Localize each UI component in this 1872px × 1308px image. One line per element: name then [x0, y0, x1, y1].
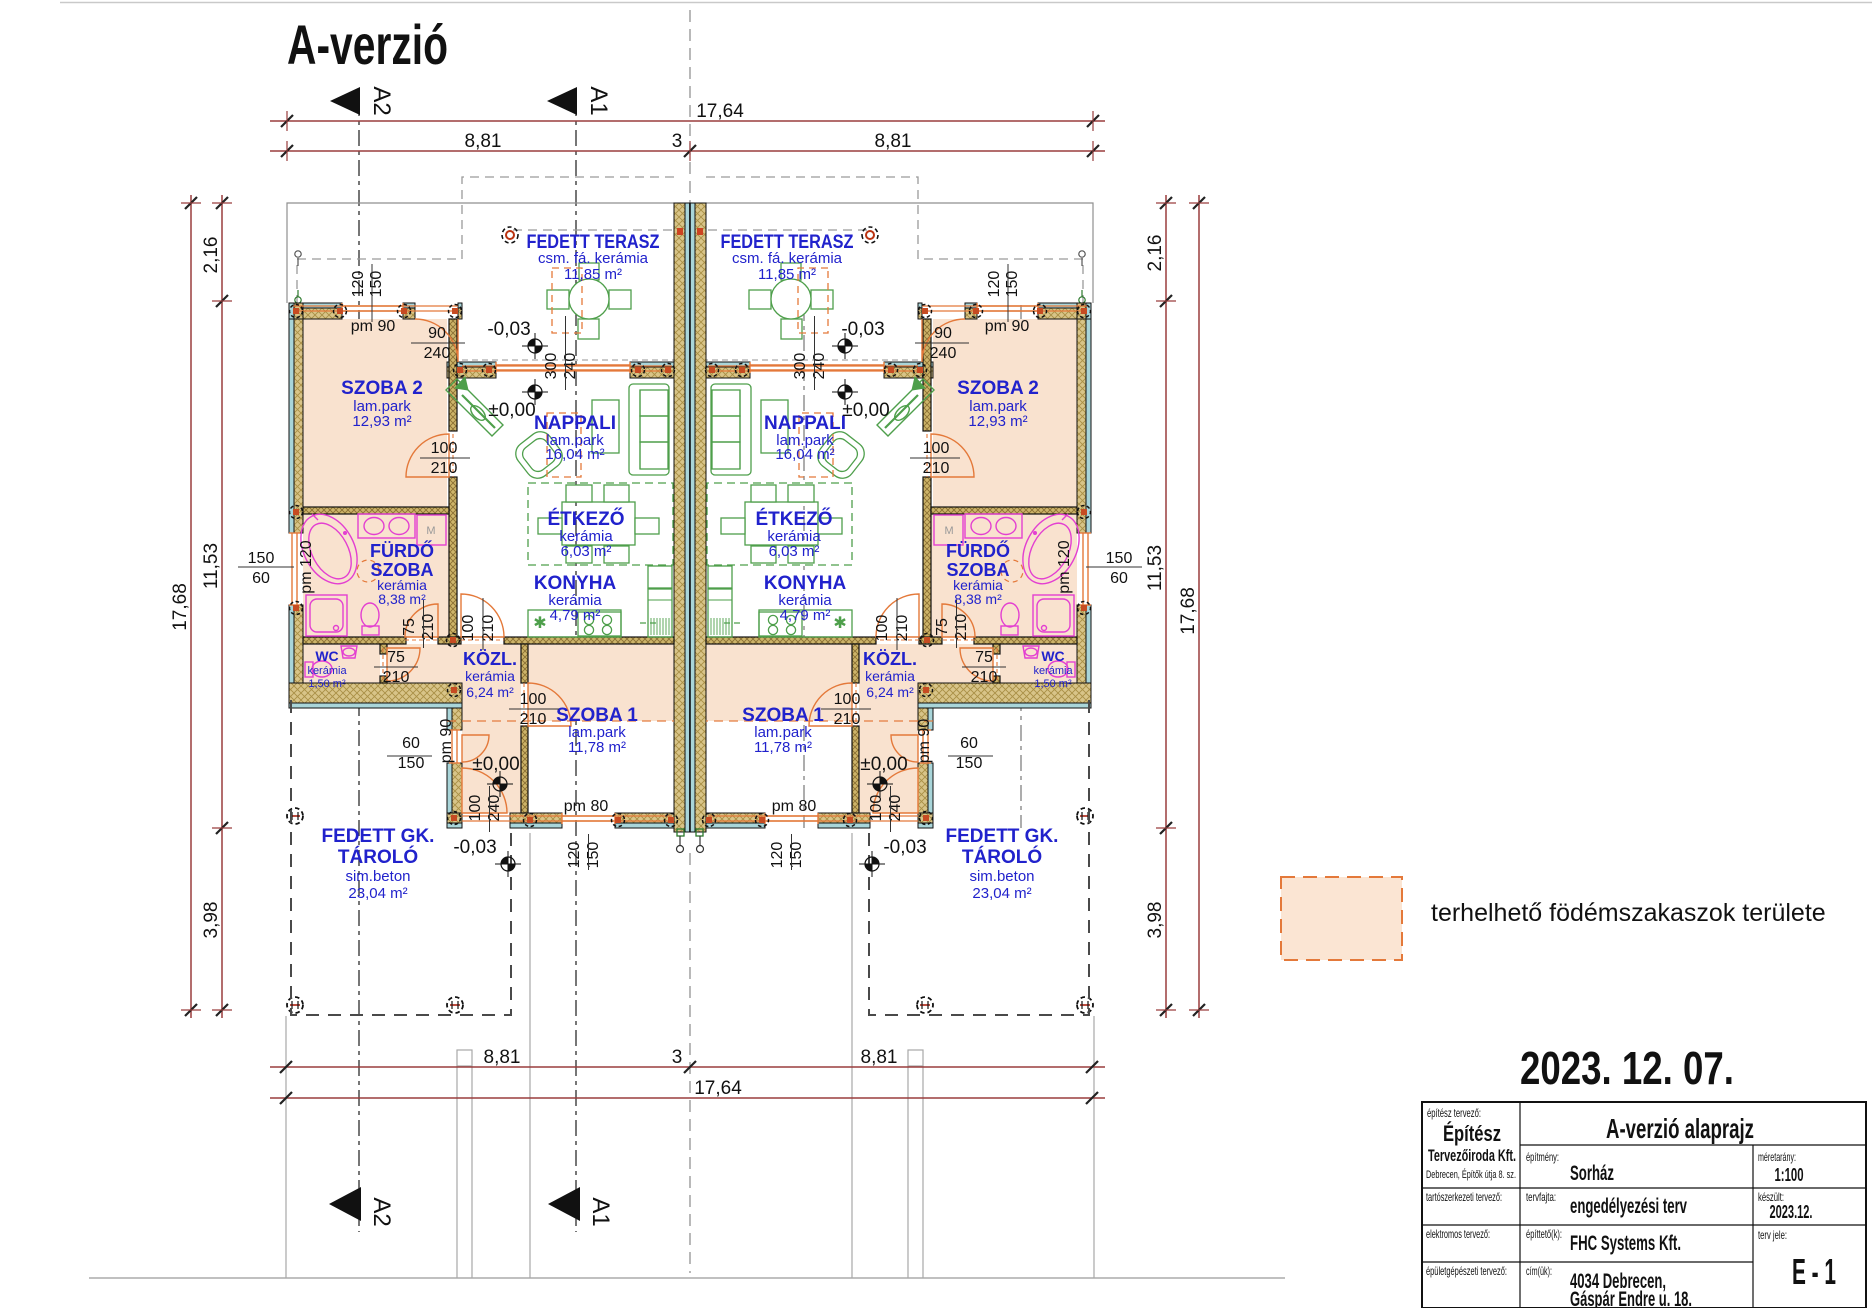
svg-text:16,04 m²: 16,04 m² [545, 446, 604, 463]
svg-text:kerámia: kerámia [465, 668, 515, 684]
svg-text:90: 90 [428, 325, 446, 342]
svg-text:3: 3 [672, 1047, 683, 1068]
svg-text:kerámia: kerámia [865, 668, 915, 684]
svg-text:pm 90: pm 90 [438, 719, 455, 764]
svg-text:SZOBA 2: SZOBA 2 [957, 378, 1039, 399]
svg-text:pm 120: pm 120 [298, 540, 315, 593]
svg-text:150: 150 [585, 842, 602, 869]
svg-text:csm. fá. kerámia: csm. fá. kerámia [538, 250, 649, 267]
svg-text:4,79 m²: 4,79 m² [780, 607, 831, 624]
svg-text:SZOBA 2: SZOBA 2 [341, 378, 423, 399]
svg-text:150: 150 [956, 755, 983, 772]
svg-text:240: 240 [811, 353, 828, 380]
svg-text:építész tervező:: építész tervező: [1427, 1106, 1481, 1120]
svg-text:8,81: 8,81 [861, 1047, 898, 1068]
svg-text:cím(ük):: cím(ük): [1526, 1264, 1552, 1278]
svg-text:±0,00: ±0,00 [842, 400, 889, 421]
svg-text:17,64: 17,64 [694, 1078, 742, 1099]
svg-text:±0,00: ±0,00 [860, 754, 907, 775]
svg-text:-0,03: -0,03 [487, 319, 530, 340]
svg-text:60: 60 [1110, 570, 1128, 587]
svg-text:8,81: 8,81 [484, 1047, 521, 1068]
svg-text:3,98: 3,98 [1145, 902, 1166, 939]
svg-text:300: 300 [792, 353, 809, 380]
svg-text:pm 90: pm 90 [985, 318, 1030, 335]
svg-text:KONYHA: KONYHA [764, 573, 847, 594]
svg-text:11,85 m²: 11,85 m² [758, 266, 816, 283]
svg-text:12,93 m²: 12,93 m² [352, 413, 411, 430]
svg-text:16,04 m²: 16,04 m² [775, 446, 834, 463]
svg-text:60: 60 [960, 735, 978, 752]
svg-text:4,79 m²: 4,79 m² [550, 607, 601, 624]
svg-text:100: 100 [923, 440, 950, 457]
svg-text:TÁROLÓ: TÁROLÓ [962, 846, 1042, 868]
svg-text:240: 240 [424, 345, 451, 362]
svg-text:8,38 m²: 8,38 m² [378, 591, 426, 607]
svg-text:SZOBA 1: SZOBA 1 [742, 705, 824, 726]
svg-text:6,03 m²: 6,03 m² [769, 543, 820, 560]
svg-text:210: 210 [953, 614, 970, 641]
svg-text:FEDETT GK.: FEDETT GK. [946, 826, 1059, 847]
svg-text:2,16: 2,16 [1145, 235, 1166, 272]
svg-text:A1: A1 [585, 86, 612, 115]
svg-text:±0,00: ±0,00 [472, 754, 519, 775]
svg-text:11,53: 11,53 [201, 543, 222, 589]
svg-text:Debrecen, Építők útja 8. sz.: Debrecen, Építők útja 8. sz. [1426, 1168, 1516, 1181]
svg-text:210: 210 [431, 460, 458, 477]
svg-text:100: 100 [834, 691, 861, 708]
svg-text:210: 210 [383, 669, 410, 686]
svg-text:240: 240 [486, 795, 503, 822]
svg-text:FHC Systems Kft.: FHC Systems Kft. [1570, 1232, 1681, 1255]
svg-text:1,50 m²: 1,50 m² [1034, 678, 1072, 690]
svg-text:pm 120: pm 120 [1056, 540, 1073, 593]
svg-text:E - 1: E - 1 [1792, 1251, 1836, 1292]
svg-text:300: 300 [543, 353, 560, 380]
svg-text:210: 210 [834, 711, 861, 728]
svg-text:100: 100 [431, 440, 458, 457]
svg-text:NAPPALI: NAPPALI [764, 413, 846, 434]
svg-text:A-verzió alaprajz: A-verzió alaprajz [1606, 1113, 1754, 1144]
svg-text:terv jele:: terv jele: [1758, 1228, 1787, 1242]
svg-text:1:100: 1:100 [1775, 1165, 1804, 1185]
svg-text:SZOBA 1: SZOBA 1 [556, 705, 638, 726]
svg-text:11,78 m²: 11,78 m² [754, 739, 812, 756]
svg-text:17,64: 17,64 [696, 101, 744, 122]
svg-text:pm 90: pm 90 [916, 719, 933, 764]
svg-text:11,78 m²: 11,78 m² [568, 739, 626, 756]
svg-text:NAPPALI: NAPPALI [534, 413, 616, 434]
svg-text:120: 120 [566, 842, 583, 869]
svg-text:75: 75 [401, 618, 418, 636]
svg-text:75: 75 [934, 618, 951, 636]
svg-text:150: 150 [788, 842, 805, 869]
svg-text:Sorház: Sorház [1570, 1162, 1614, 1185]
svg-text:6,24 m²: 6,24 m² [466, 684, 514, 700]
svg-text:Építész: Építész [1443, 1121, 1501, 1146]
svg-text:±0,00: ±0,00 [488, 400, 535, 421]
svg-text:csm. fá. kerámia: csm. fá. kerámia [732, 250, 843, 267]
svg-text:150: 150 [248, 550, 275, 567]
svg-text:-0,03: -0,03 [883, 837, 926, 858]
svg-text:23,04 m²: 23,04 m² [972, 885, 1031, 902]
svg-text:8,38 m²: 8,38 m² [954, 591, 1002, 607]
svg-text:épületgépészeti tervező:: épületgépészeti tervező: [1426, 1264, 1507, 1278]
svg-text:12,93 m²: 12,93 m² [968, 413, 1027, 430]
svg-text:engedélyezési terv: engedélyezési terv [1570, 1195, 1687, 1218]
svg-text:3,98: 3,98 [201, 902, 222, 939]
svg-text:210: 210 [971, 669, 998, 686]
svg-text:Gáspár Endre u. 18.: Gáspár Endre u. 18. [1570, 1288, 1692, 1308]
svg-text:6,03 m²: 6,03 m² [561, 543, 612, 560]
svg-text:WC: WC [1041, 648, 1064, 664]
svg-text:tervfajta:: tervfajta: [1526, 1190, 1556, 1204]
svg-text:75: 75 [387, 649, 405, 666]
svg-text:ÉTKEZŐ: ÉTKEZŐ [547, 508, 624, 530]
svg-text:pm 90: pm 90 [351, 318, 396, 335]
svg-text:kerámia: kerámia [1033, 665, 1073, 677]
svg-text:sim.beton: sim.beton [969, 868, 1034, 885]
svg-text:A2: A2 [368, 86, 395, 115]
svg-text:WC: WC [315, 648, 338, 664]
svg-text:TÁROLÓ: TÁROLÓ [338, 846, 418, 868]
svg-text:6,24 m²: 6,24 m² [866, 684, 914, 700]
svg-text:építtető(k):: építtető(k): [1526, 1227, 1562, 1241]
svg-text:2023. 12. 07.: 2023. 12. 07. [1520, 1042, 1734, 1094]
svg-text:240: 240 [887, 795, 904, 822]
svg-text:FEDETT GK.: FEDETT GK. [322, 826, 435, 847]
svg-text:11,85 m²: 11,85 m² [564, 266, 622, 283]
svg-text:ÉTKEZŐ: ÉTKEZŐ [755, 508, 832, 530]
svg-text:100: 100 [868, 795, 885, 822]
svg-text:FÜRDŐ: FÜRDŐ [946, 540, 1010, 561]
svg-text:KONYHA: KONYHA [534, 573, 617, 594]
svg-text:1,50 m²: 1,50 m² [308, 678, 346, 690]
svg-text:100: 100 [460, 615, 477, 642]
svg-text:2,16: 2,16 [201, 237, 222, 274]
svg-text:240: 240 [930, 345, 957, 362]
svg-text:60: 60 [252, 570, 270, 587]
svg-text:építmény:: építmény: [1526, 1150, 1559, 1164]
svg-text:150: 150 [368, 271, 385, 298]
svg-text:150: 150 [1106, 550, 1133, 567]
svg-text:17,68: 17,68 [170, 583, 191, 631]
svg-text:3: 3 [672, 131, 683, 152]
svg-text:elektromos tervező:: elektromos tervező: [1426, 1227, 1490, 1241]
svg-text:100: 100 [520, 691, 547, 708]
svg-text:sim.beton: sim.beton [345, 868, 410, 885]
svg-text:60: 60 [402, 735, 420, 752]
svg-text:90: 90 [934, 325, 952, 342]
svg-text:75: 75 [975, 649, 993, 666]
svg-text:-0,03: -0,03 [453, 837, 496, 858]
svg-text:120: 120 [986, 271, 1003, 298]
svg-text:8,81: 8,81 [875, 131, 912, 152]
svg-text:-0,03: -0,03 [841, 319, 884, 340]
svg-text:KÖZL.: KÖZL. [863, 649, 917, 669]
svg-text:150: 150 [1004, 271, 1021, 298]
svg-text:210: 210 [520, 711, 547, 728]
svg-text:240: 240 [562, 353, 579, 380]
svg-text:pm 80: pm 80 [564, 798, 609, 815]
svg-text:210: 210 [923, 460, 950, 477]
svg-text:2023.12.: 2023.12. [1770, 1202, 1813, 1222]
svg-text:17,68: 17,68 [1178, 587, 1199, 635]
svg-text:150: 150 [398, 755, 425, 772]
svg-text:120: 120 [350, 271, 367, 298]
svg-text:23,04 m²: 23,04 m² [348, 885, 407, 902]
svg-text:KÖZL.: KÖZL. [463, 649, 517, 669]
svg-text:FÜRDŐ: FÜRDŐ [370, 540, 434, 561]
svg-text:120: 120 [769, 842, 786, 869]
svg-text:terhelhető födémszakaszok terü: terhelhető födémszakaszok területe [1431, 899, 1826, 927]
svg-text:8,81: 8,81 [465, 131, 502, 152]
svg-text:100: 100 [467, 795, 484, 822]
svg-text:kerámia: kerámia [307, 665, 347, 677]
svg-text:210: 210 [420, 614, 437, 641]
svg-text:Tervezőiroda Kft.: Tervezőiroda Kft. [1428, 1146, 1516, 1165]
svg-text:tartószerkezeti tervező:: tartószerkezeti tervező: [1426, 1190, 1502, 1204]
svg-text:méretarány:: méretarány: [1758, 1150, 1796, 1164]
svg-text:A1: A1 [587, 1197, 614, 1226]
svg-text:11,53: 11,53 [1145, 545, 1166, 591]
svg-text:A-verzió: A-verzió [287, 13, 448, 76]
svg-text:100: 100 [874, 615, 891, 642]
svg-text:A2: A2 [368, 1197, 395, 1226]
svg-text:pm 80: pm 80 [772, 798, 817, 815]
